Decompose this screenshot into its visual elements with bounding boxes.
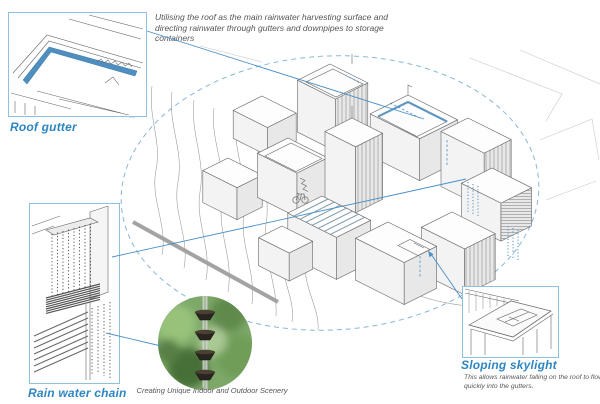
- rain-water-chain-label: Rain water chain: [28, 386, 127, 400]
- hanging-chains-lower: [92, 302, 110, 378]
- rainwater-diagram-canvas: Utilising the roof as the main rainwater…: [0, 0, 600, 404]
- sloping-skylight-description: This allows rainwater falling on the roo…: [464, 373, 600, 391]
- diagonal-slats-lower: [34, 312, 88, 372]
- sloping-skylight-thumbnail: [463, 287, 557, 356]
- rain-water-chain-callout-box: [29, 203, 120, 384]
- building-cluster: [203, 54, 532, 305]
- photo-caption: Creating Unique Indoor and Outdoor Scene…: [122, 386, 302, 395]
- top-note-text: Utilising the roof as the main rainwater…: [155, 12, 397, 44]
- roof-gutter-thumbnail: [9, 13, 145, 115]
- gutter-channel: [23, 47, 137, 84]
- rain-water-chain-thumbnail: [30, 204, 118, 382]
- sloping-skylight-callout-box: [462, 286, 559, 358]
- hanging-chains-upper: [52, 224, 91, 297]
- rain-chain-photo: [158, 296, 252, 390]
- retaining-wall: [133, 222, 278, 302]
- roof-gutter-callout-box: [8, 12, 147, 117]
- sloping-skylight-label: Sloping skylight: [461, 358, 557, 372]
- roof-gutter-label: Roof gutter: [10, 120, 77, 134]
